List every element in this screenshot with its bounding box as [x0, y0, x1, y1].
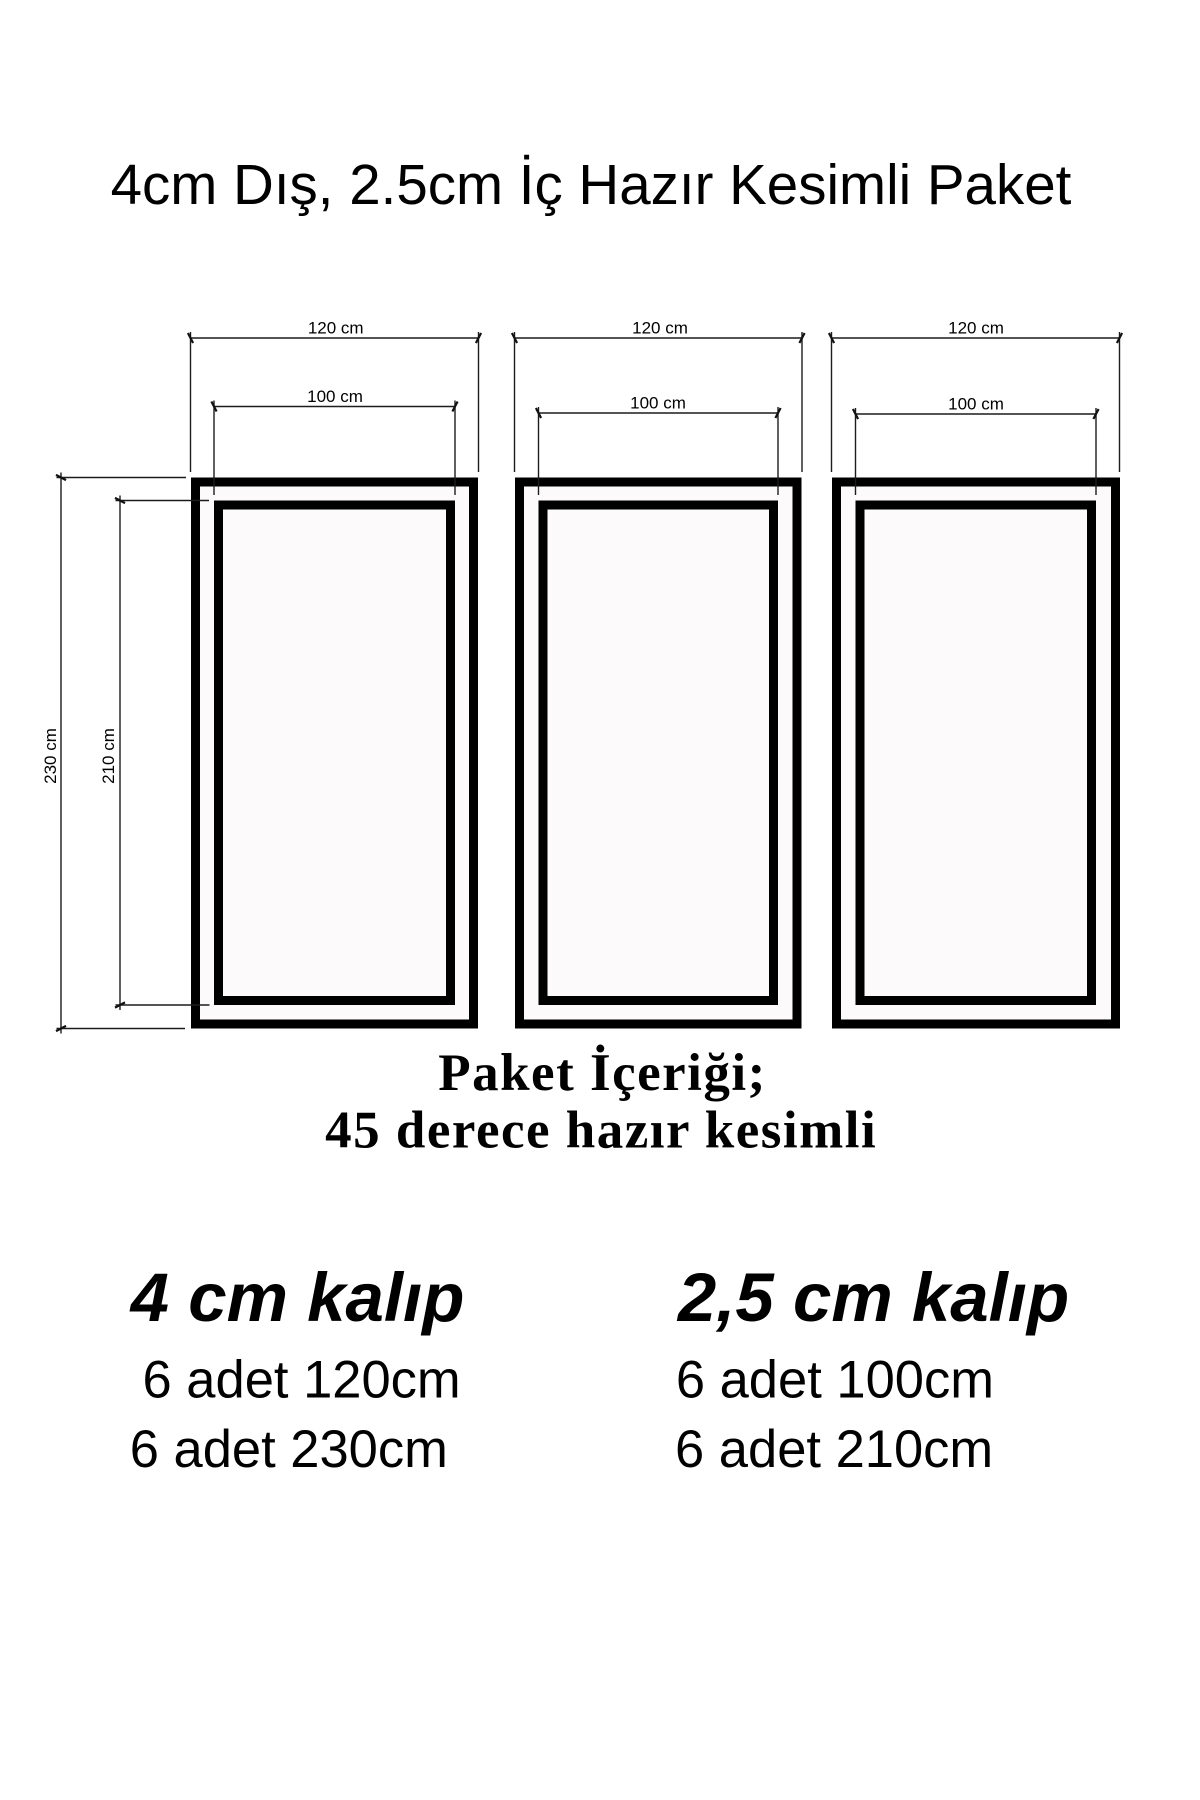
svg-text:100 cm: 100 cm	[630, 394, 686, 413]
svg-text:6 adet 210cm: 6 adet 210cm	[675, 1420, 993, 1479]
svg-text:120 cm: 120 cm	[948, 319, 1004, 338]
svg-text:6 adet 120cm: 6 adet 120cm	[143, 1351, 461, 1410]
svg-text:4cm Dış, 2.5cm İç Hazır Kesiml: 4cm Dış, 2.5cm İç Hazır Kesimli Paket	[111, 153, 1072, 216]
svg-text:100 cm: 100 cm	[307, 387, 363, 406]
svg-text:Paket İçeriği;: Paket İçeriği;	[438, 1044, 767, 1102]
svg-text:210 cm: 210 cm	[99, 728, 118, 784]
svg-text:45 derece hazır kesimli: 45 derece hazır kesimli	[325, 1102, 877, 1160]
svg-text:230 cm: 230 cm	[41, 728, 60, 784]
svg-text:4 cm kalıp: 4 cm kalıp	[129, 1259, 465, 1336]
svg-text:2,5 cm kalıp: 2,5 cm kalıp	[676, 1259, 1069, 1336]
svg-text:100 cm: 100 cm	[948, 395, 1004, 414]
svg-text:6 adet 230cm: 6 adet 230cm	[130, 1420, 448, 1479]
svg-text:120 cm: 120 cm	[308, 319, 364, 338]
svg-text:120 cm: 120 cm	[632, 319, 688, 338]
svg-text:6 adet 100cm: 6 adet 100cm	[676, 1351, 994, 1410]
